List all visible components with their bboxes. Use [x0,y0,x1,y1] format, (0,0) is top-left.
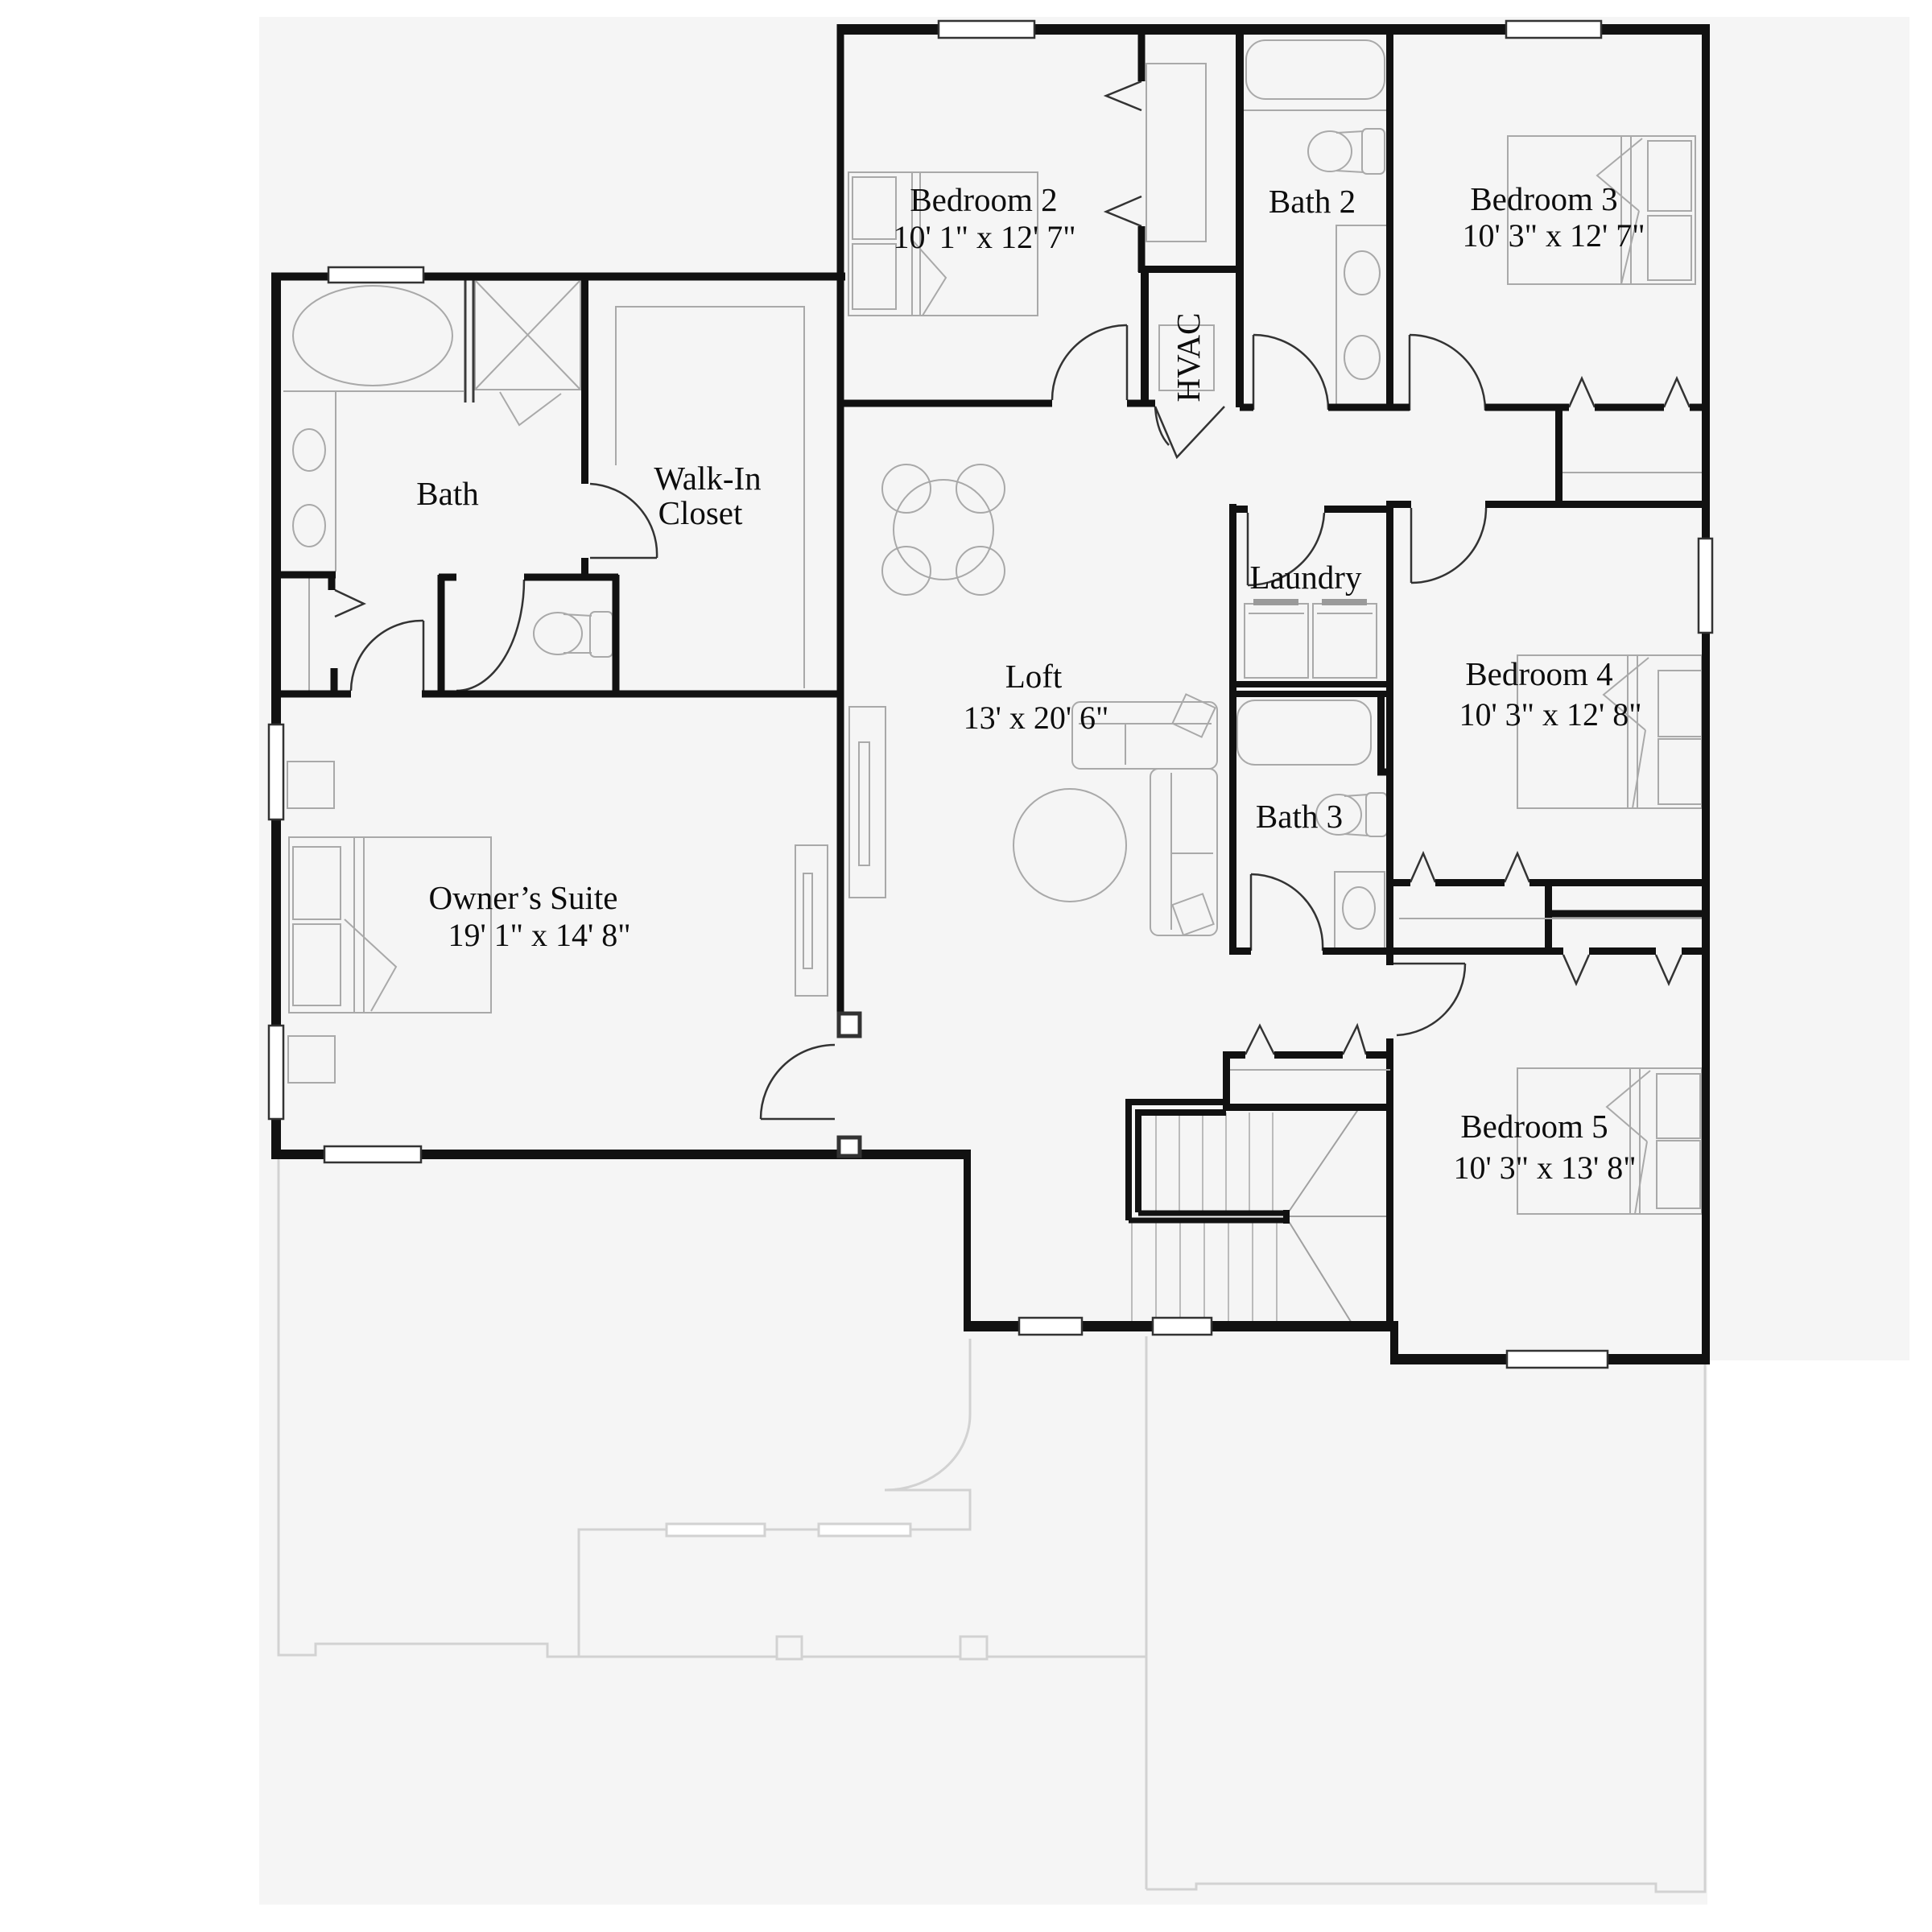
svg-text:Bedroom 3: Bedroom 3 [1470,180,1617,217]
svg-text:Walk-In: Walk-In [654,460,761,497]
svg-text:10' 3" x 12' 7": 10' 3" x 12' 7" [1462,217,1645,254]
svg-text:Bedroom 2: Bedroom 2 [910,181,1057,218]
svg-text:Bath 3: Bath 3 [1256,798,1343,835]
svg-text:13' x 20' 6": 13' x 20' 6" [964,700,1109,736]
svg-text:Bath: Bath [416,475,478,512]
svg-text:Bath 2: Bath 2 [1269,183,1356,220]
svg-text:Loft: Loft [1005,658,1063,695]
svg-text:19' 1" x 14' 8": 19' 1" x 14' 8" [448,917,630,953]
svg-text:Owner’s Suite: Owner’s Suite [429,879,618,916]
svg-text:Closet: Closet [658,494,743,531]
svg-text:Laundry: Laundry [1250,559,1362,596]
svg-text:10' 1" x 12' 7": 10' 1" x 12' 7" [893,219,1075,255]
svg-text:Bedroom 4: Bedroom 4 [1465,655,1612,692]
svg-text:10' 3" x 13' 8": 10' 3" x 13' 8" [1453,1150,1636,1186]
svg-text:HVAC: HVAC [1170,313,1207,402]
svg-text:Bedroom 5: Bedroom 5 [1460,1108,1608,1145]
svg-text:10' 3" x 12' 8": 10' 3" x 12' 8" [1459,696,1641,733]
